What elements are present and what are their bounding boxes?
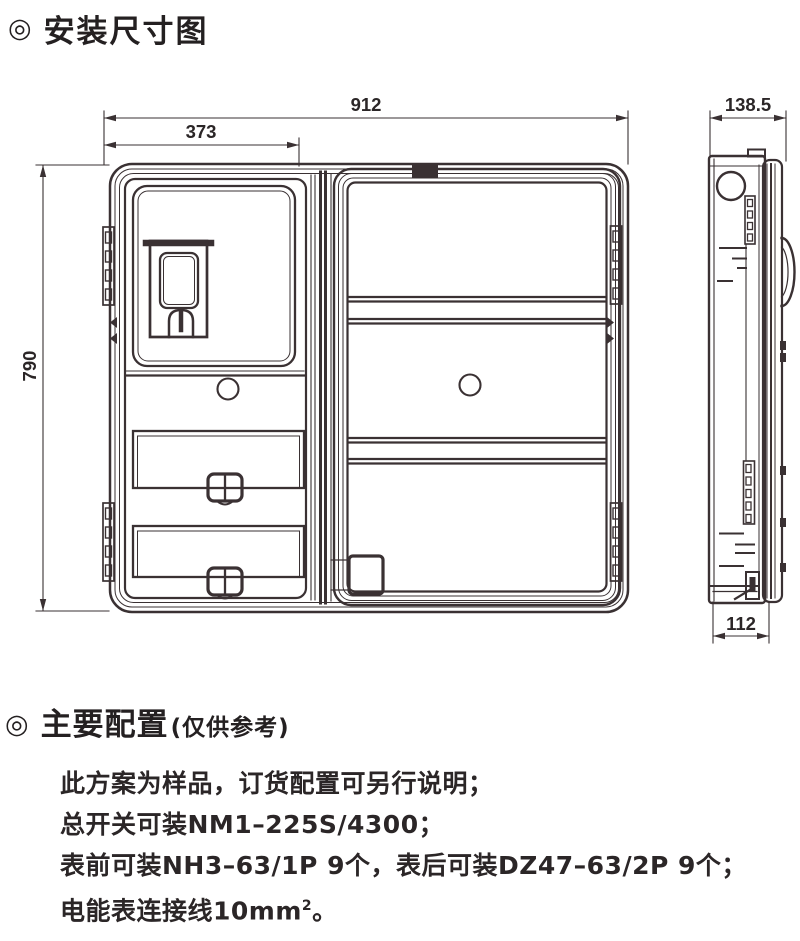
arrowhead (774, 115, 786, 121)
cabinet-outline (110, 164, 628, 612)
config-line: 总开关可装NM1–225S/4300； (60, 804, 800, 845)
front-view (103, 164, 628, 612)
superscript-2: 2 (302, 898, 312, 914)
side-hinge-pin (780, 353, 786, 362)
config-notes: 此方案为样品，订货配置可另行说明； 总开关可装NM1–225S/4300； 表前… (60, 763, 800, 931)
installation-diagram: 912 373 790 138.5 (0, 0, 800, 680)
arrowhead (40, 165, 46, 177)
config-line: 电能表连接线10mm2。 (60, 886, 800, 931)
arrowhead (40, 599, 46, 611)
side-hinge-pin (780, 563, 786, 572)
right-door (331, 165, 620, 606)
dim-side-depth-top-value: 138.5 (725, 94, 771, 115)
config-title: 主要配置 (41, 699, 169, 744)
dim-front-height: 790 (19, 165, 109, 611)
config-line4-period: 。 (312, 896, 338, 925)
dimension-drawing: 912 373 790 138.5 (0, 0, 800, 680)
side-hinge-pin (780, 341, 786, 350)
mount-hole-left (218, 379, 239, 400)
top-latch-tab (412, 165, 438, 178)
arrowhead (710, 115, 722, 121)
side-body (709, 156, 765, 603)
dim-front-height-value: 790 (19, 351, 40, 382)
dim-left-section-width: 373 (104, 121, 299, 166)
dim-side-depth-bottom: 112 (713, 602, 769, 643)
config-section-title: ◎ 主要配置 (仅供参考) (5, 699, 290, 744)
dim-front-width-value: 912 (351, 94, 382, 115)
arrowhead (713, 633, 725, 639)
breaker-panel-upper (133, 431, 304, 505)
meter-window-glass (160, 253, 198, 308)
arrowhead (616, 115, 628, 121)
side-hinge-pin (780, 466, 786, 475)
side-view (709, 150, 795, 604)
page: { "install_section": { "bullet": "◎", "t… (0, 0, 800, 941)
config-line: 此方案为样品，订货配置可另行说明； (60, 763, 800, 804)
arrowhead (287, 142, 299, 148)
vent-slots-lower (744, 461, 755, 524)
arrowhead (104, 142, 116, 148)
hinge-left-upper (103, 227, 114, 305)
config-line: 表前可装NH3–63/1P 9个，表后可装DZ47–63/2P 9个； (60, 845, 800, 886)
meter-window-section (133, 186, 295, 366)
breaker-panel-lower (133, 526, 304, 599)
side-hinge-pin (780, 518, 786, 527)
dim-side-depth-bottom-value: 112 (726, 613, 756, 634)
vent-slots-upper (745, 196, 755, 244)
config-line4-text: 电能表连接线10mm (60, 896, 302, 925)
dim-front-width: 912 (104, 94, 628, 164)
meter-rail-upper (349, 297, 605, 324)
cable-knockout (717, 172, 745, 200)
dim-left-section-value: 373 (186, 121, 217, 142)
config-subtitle: (仅供参考) (171, 708, 290, 742)
bullseye-icon: ◎ (5, 711, 29, 738)
meter-rail-lower (349, 438, 605, 464)
arrowhead (104, 115, 116, 121)
hinge-left-lower (103, 503, 114, 581)
mount-hole-right (460, 375, 481, 396)
center-mullion (311, 172, 331, 603)
arrowhead (757, 633, 769, 639)
